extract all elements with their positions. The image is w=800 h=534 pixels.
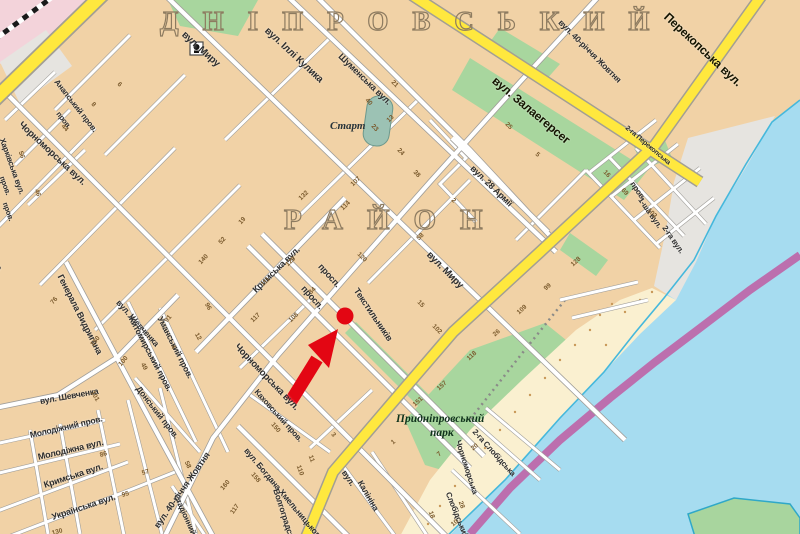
district-name-line1: ДНІПРОВСЬКИЙ — [160, 6, 673, 37]
map-graphics — [0, 0, 800, 534]
monument-icon — [190, 42, 203, 55]
district-name-line2: РАЙОН — [284, 204, 507, 237]
marker-dot — [337, 308, 354, 325]
city-map[interactable]: ДНІПРОВСЬКИЙ РАЙОН вул. Мирувул. Іллі Ку… — [0, 0, 800, 534]
